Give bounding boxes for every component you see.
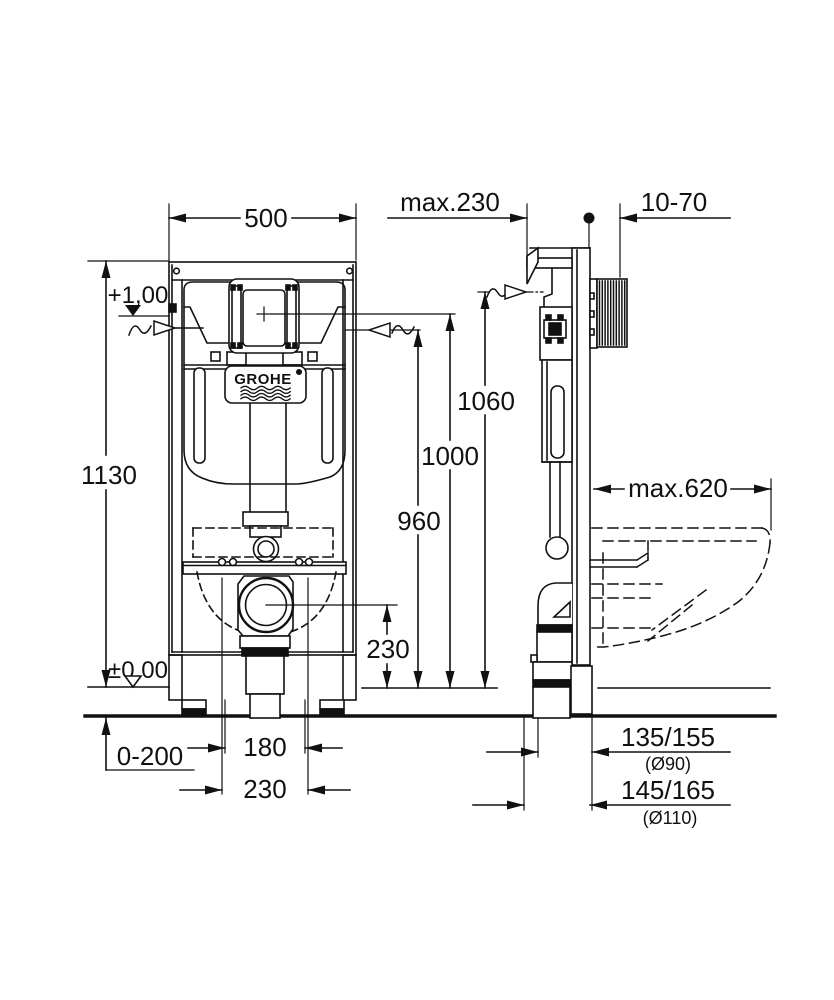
level-marker-top: +1,00 [108, 282, 169, 316]
dim-front-width: 500 [169, 203, 356, 260]
fixing-block [544, 315, 566, 343]
dim-outlet-gap-outer-label: 230 [243, 774, 286, 804]
dim-flush-pipe-height: 1060 [457, 292, 515, 688]
dim-wall-clearance: 10-70 [584, 187, 731, 277]
dim-floor-buildup-label: 0-200 [117, 741, 184, 771]
supply-knockout-mark [169, 304, 176, 312]
grohe-logo-text: GROHE [234, 371, 292, 388]
dim-front-width-label: 500 [244, 203, 287, 233]
level-marker-floor: ±0,00 [108, 657, 168, 687]
dim-outlet-dia-110-label: (Ø110) [643, 808, 698, 828]
wall-reference-dot-icon [584, 213, 595, 224]
dim-depth-max: max.230 [388, 187, 527, 260]
grohe-logo: GROHE [225, 366, 306, 403]
dim-outlet-offset-110-label: 145/165 [621, 775, 715, 805]
registered-mark-icon [296, 369, 302, 375]
dim-depth-max-label: max.230 [400, 187, 500, 217]
dim-wall-clearance-label: 10-70 [641, 187, 708, 217]
dimension-annotations: 500 max.230 10-70 1130 +1,00 [81, 187, 771, 828]
rail-foot [571, 666, 592, 714]
wall-sleeve [590, 279, 627, 348]
supply-arrow-icon [369, 323, 390, 337]
dim-outlet-center-height-label: 230 [366, 634, 409, 664]
frame-rail [572, 248, 590, 665]
corner-screw-icon [174, 268, 180, 274]
level-triangle-icon [125, 305, 141, 316]
supply-arrow-icon [505, 285, 526, 299]
dim-water-supply-height-label: 960 [397, 506, 440, 536]
dim-outlet-offset-90-label: 135/155 [621, 722, 715, 752]
dim-outlet-offsets: 135/155 (Ø90) 145/165 (Ø110) [473, 714, 730, 828]
dim-floor-buildup: 0-200 [106, 718, 194, 771]
level-top-label: +1,00 [108, 282, 169, 309]
dim-plate-center-height: 1000 [421, 314, 479, 688]
dim-frame-height-label: 1130 [81, 460, 137, 490]
dim-outlet-gap-inner-label: 180 [243, 732, 286, 762]
waste-elbow [531, 583, 572, 718]
dim-bowl-depth: max.620 [594, 473, 771, 530]
flush-plate-box [229, 279, 299, 353]
flush-pipe [243, 512, 288, 562]
corner-screw-icon [347, 268, 353, 274]
technical-drawing: GROHE [0, 0, 834, 1000]
drawing-sheet: GROHE [0, 0, 834, 1000]
dim-outlet-center-height: 230 [366, 605, 409, 688]
mounting-stud [590, 553, 648, 567]
dim-flush-pipe-height-label: 1060 [457, 386, 515, 416]
front-view: GROHE [169, 262, 356, 718]
dim-plate-center-height-label: 1000 [421, 441, 479, 471]
dim-bowl-depth-label: max.620 [628, 473, 728, 503]
break-squiggle-icon [129, 326, 151, 335]
dim-outlet-dia-90-label: (Ø90) [645, 754, 691, 774]
outlet-bend [197, 572, 336, 718]
toilet-bowl-outline [592, 528, 770, 647]
top-bracket-hook [527, 248, 538, 284]
